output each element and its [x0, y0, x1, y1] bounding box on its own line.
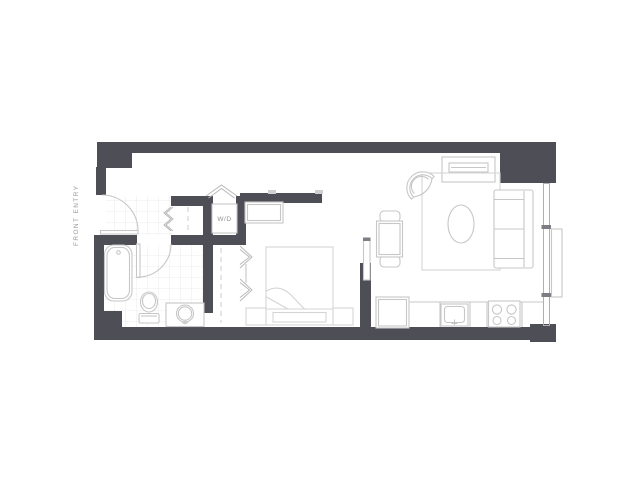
left-wall-lower	[94, 235, 104, 313]
glass-panel-cap	[363, 238, 371, 242]
floor-plan-page: FRONT ENTRY	[0, 0, 640, 480]
glass-partition	[363, 238, 371, 281]
wall-track-tick-left	[268, 190, 276, 194]
top-right-wall-block	[500, 142, 556, 183]
bathroom-wall-left-of-door	[94, 235, 137, 245]
top-left-wall-column	[97, 142, 132, 168]
bottom-exterior-wall	[94, 327, 530, 340]
bedroom	[245, 202, 353, 325]
bathtub	[105, 245, 133, 301]
bathroom-door-leaf	[137, 244, 141, 278]
dining-chair-top	[380, 211, 400, 222]
vanity-sink	[166, 303, 204, 327]
dining-nook	[377, 211, 403, 267]
nightstand-left	[246, 308, 266, 325]
door-jamb-bottom	[542, 293, 552, 297]
cooktop	[489, 301, 521, 327]
wd-bifold-doors	[206, 185, 237, 196]
door-jamb-top	[542, 225, 552, 229]
window-wall	[542, 183, 563, 326]
hall-closet-top-wall	[171, 196, 203, 206]
balcony-door-panel	[552, 229, 563, 297]
tv-console	[442, 157, 495, 182]
wall-track-tick-right	[315, 190, 323, 194]
dining-chair-bottom	[380, 256, 400, 267]
bottom-right-wall-block	[530, 324, 556, 342]
dining-table	[377, 221, 403, 257]
entry-door-leaf	[101, 231, 139, 235]
bottom-left-wall-step	[94, 311, 122, 329]
sofa	[494, 190, 533, 268]
coffee-table	[448, 205, 474, 243]
dresser	[245, 202, 283, 223]
kitchen-sink	[441, 304, 468, 326]
nightstand-right	[333, 308, 353, 325]
armchair	[400, 165, 437, 202]
washer-dryer-label: W/D	[217, 216, 231, 223]
floor-plan-drawing: FRONT ENTRY	[0, 0, 640, 480]
front-entry-label: FRONT ENTRY	[73, 185, 80, 246]
entry-hall-tile-floor	[106, 196, 172, 235]
glass-panel	[364, 240, 371, 280]
toilet	[139, 292, 159, 323]
kitchen	[376, 297, 543, 328]
bed	[266, 247, 333, 325]
left-wall-upper	[96, 167, 106, 195]
refrigerator	[376, 297, 409, 328]
top-exterior-wall	[97, 142, 500, 153]
